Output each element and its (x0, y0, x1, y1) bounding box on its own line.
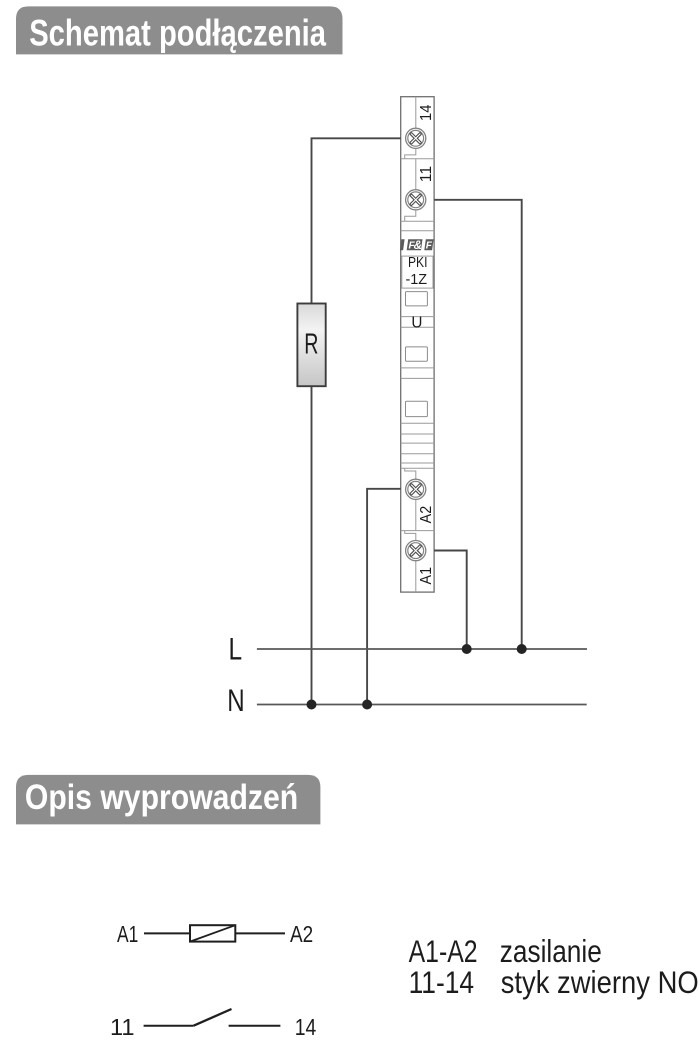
svg-text:A1: A1 (117, 921, 138, 947)
svg-text:N: N (227, 683, 244, 718)
svg-text:14: 14 (418, 105, 435, 121)
svg-text:PKI: PKI (408, 255, 428, 271)
svg-text:A2: A2 (418, 506, 435, 524)
svg-text:A2: A2 (290, 921, 313, 947)
svg-text:R: R (304, 329, 318, 361)
svg-text:11-14: 11-14 (409, 964, 475, 1000)
svg-text:-1Z: -1Z (406, 272, 428, 288)
svg-text:11: 11 (110, 1014, 135, 1040)
svg-text:11: 11 (418, 166, 435, 183)
svg-text:Opis wyprowadzeń: Opis wyprowadzeń (25, 778, 298, 817)
svg-text:A1: A1 (418, 567, 435, 585)
svg-text:14: 14 (295, 1014, 317, 1040)
svg-text:&: & (414, 240, 422, 252)
svg-text:U: U (411, 315, 422, 332)
svg-text:L: L (229, 631, 243, 667)
svg-text:Schemat podłączenia: Schemat podłączenia (29, 11, 327, 53)
svg-text:F: F (426, 241, 433, 252)
svg-text:styk zwierny NO: styk zwierny NO (501, 964, 699, 1000)
